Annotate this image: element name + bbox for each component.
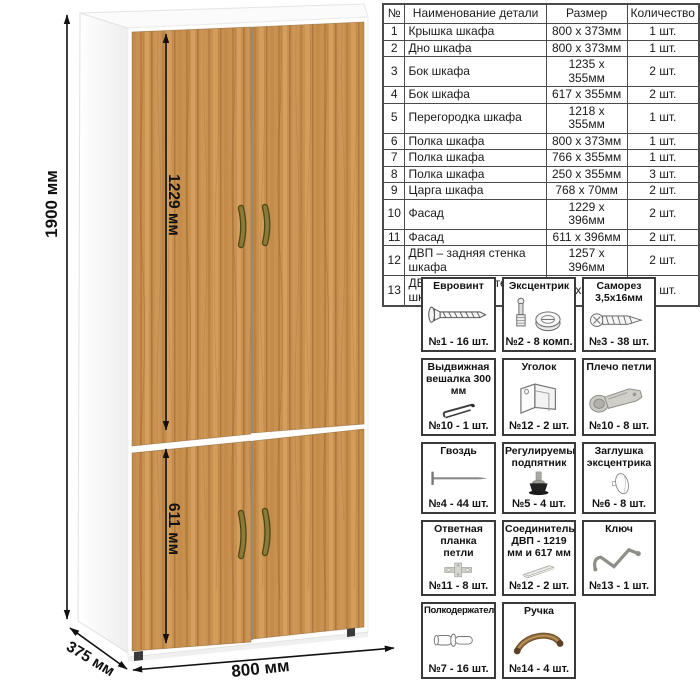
- hardware-title: Полкодержатель: [424, 606, 493, 617]
- table-row: 3Бок шкафа1235 х 355мм2 шт.: [383, 57, 699, 87]
- wardrobe-side-panel: [78, 13, 128, 653]
- part-size: 800 х 373мм: [546, 133, 627, 150]
- table-row: 6Полка шкафа800 х 373мм1 шт.: [383, 133, 699, 150]
- hex-key-icon: [585, 536, 653, 580]
- part-qty: 1 шт.: [627, 24, 699, 41]
- hardware-label: №12 - 2 шт.: [505, 420, 573, 433]
- hardware-title: Соединитель ДВП - 1219 мм и 617 мм: [505, 524, 573, 559]
- dim-width-label: 800 мм: [230, 656, 290, 681]
- part-qty: 2 шт.: [627, 246, 699, 276]
- part-qty: 1 шт.: [627, 150, 699, 167]
- row-num: 9: [383, 183, 405, 200]
- part-name: ДВП – задняя стенка шкафа: [405, 246, 546, 276]
- hardware-label: №3 - 38 шт.: [585, 336, 653, 349]
- part-name: Бок шкафа: [405, 87, 546, 104]
- hardware-label: №4 - 44 шт.: [424, 498, 493, 511]
- hardware-item-euro-screw: Евровинт№1 - 16 шт.: [421, 277, 496, 352]
- part-size: 611 х 396мм: [546, 229, 627, 246]
- row-num: 6: [383, 133, 405, 150]
- part-qty: 1 шт.: [627, 40, 699, 57]
- nail-icon: [424, 458, 493, 498]
- row-num: 7: [383, 150, 405, 167]
- col-header-name: Наименование детали: [405, 4, 546, 24]
- hardware-item-hinge-arm: Плечо петли№10 - 8 шт.: [582, 358, 656, 436]
- part-size: 768 х 70мм: [546, 183, 627, 200]
- hardware-title: Эксцентрик: [505, 281, 573, 293]
- row-num: 13: [383, 276, 405, 307]
- wardrobe-illustration: 1900 мм 1229 мм 611 мм 800 мм 375 мм: [0, 0, 410, 700]
- euro-screw-icon: [424, 293, 493, 336]
- part-qty: 2 шт.: [627, 87, 699, 104]
- hardware-item-adjustable-foot: Регулируемый подпятник№5 - 4 шт.: [502, 442, 576, 514]
- part-size: 1235 х 355мм: [546, 57, 627, 87]
- hardware-item-hinge-plate: Ответная планка петли№11 - 8 шт.: [421, 520, 496, 596]
- hardware-item-hex-key: Ключ№13 - 1 шт.: [582, 520, 656, 596]
- col-header-qty: Количество: [627, 4, 699, 24]
- part-qty: 2 шт.: [627, 199, 699, 229]
- table-row: 2Дно шкафа800 х 373мм1 шт.: [383, 40, 699, 57]
- row-num: 10: [383, 199, 405, 229]
- part-size: 800 х 373мм: [546, 40, 627, 57]
- row-num: 5: [383, 103, 405, 133]
- dim-height-label: 1900 мм: [42, 170, 61, 238]
- door-lower-left: [132, 441, 251, 651]
- hdf-connector-icon: [505, 559, 573, 580]
- part-size: 250 х 355мм: [546, 166, 627, 183]
- hardware-title: Ручка: [505, 606, 573, 618]
- part-name: Фасад: [405, 229, 546, 246]
- part-name: Дно шкафа: [405, 40, 546, 57]
- row-num: 4: [383, 87, 405, 104]
- part-size: 766 х 355мм: [546, 150, 627, 167]
- part-name: Царга шкафа: [405, 183, 546, 200]
- hardware-title: Плечо петли: [585, 362, 653, 374]
- hardware-title: Евровинт: [424, 281, 493, 293]
- hardware-item-screw: Саморез 3,5х16мм№3 - 38 шт.: [582, 277, 656, 352]
- table-row: 4Бок шкафа617 х 355мм2 шт.: [383, 87, 699, 104]
- wardrobe-foot-left: [134, 651, 143, 661]
- col-header-num: №: [383, 4, 405, 24]
- parts-table: № Наименование детали Размер Количество …: [382, 3, 700, 307]
- hardware-title: Заглушка эксцентрика: [585, 446, 653, 470]
- part-name: Бок шкафа: [405, 57, 546, 87]
- hardware-label: №13 - 1 шт.: [585, 580, 653, 593]
- row-num: 1: [383, 24, 405, 41]
- hardware-title: Уголок: [505, 362, 573, 374]
- hardware-item-nail: Гвоздь№4 - 44 шт.: [421, 442, 496, 514]
- part-qty: 2 шт.: [627, 183, 699, 200]
- hardware-label: №10 - 8 шт.: [585, 420, 653, 433]
- table-row: 11Фасад611 х 396мм2 шт.: [383, 229, 699, 246]
- hardware-title: Ключ: [585, 524, 653, 536]
- handle-lower-right: [265, 511, 268, 553]
- part-qty: 1 шт.: [627, 103, 699, 133]
- table-row: 8Полка шкафа250 х 355мм3 шт.: [383, 166, 699, 183]
- parts-table-body: 1Крышка шкафа800 х 373мм1 шт.2Дно шкафа8…: [383, 24, 699, 307]
- row-num: 11: [383, 229, 405, 246]
- adjustable-foot-icon: [505, 470, 573, 499]
- table-row: 1Крышка шкафа800 х 373мм1 шт.: [383, 24, 699, 41]
- hardware-item-hdf-connector: Соединитель ДВП - 1219 мм и 617 мм№12 - …: [502, 520, 576, 596]
- shelf-pin-icon: [424, 617, 493, 663]
- part-size: 1218 х 355мм: [546, 103, 627, 133]
- part-name: Перегородка шкафа: [405, 103, 546, 133]
- hardware-title: Выдвижная вешалка 300 мм: [424, 362, 493, 397]
- part-size: 800 х 373мм: [546, 24, 627, 41]
- parts-table-header-row: № Наименование детали Размер Количество: [383, 4, 699, 24]
- row-num: 12: [383, 246, 405, 276]
- part-name: Крышка шкафа: [405, 24, 546, 41]
- hardware-item-pullout-hanger: Выдвижная вешалка 300 мм№10 - 1 шт.: [421, 358, 496, 436]
- col-header-size: Размер: [546, 4, 627, 24]
- table-row: 9Царга шкафа768 х 70мм2 шт.: [383, 183, 699, 200]
- row-num: 3: [383, 57, 405, 87]
- part-qty: 2 шт.: [627, 57, 699, 87]
- hardware-label: №2 - 8 комп.: [505, 336, 573, 349]
- hardware-item-corner-bracket: Уголок№12 - 2 шт.: [502, 358, 576, 436]
- hardware-label: №1 - 16 шт.: [424, 336, 493, 349]
- part-qty: 2 шт.: [627, 229, 699, 246]
- part-name: Полка шкафа: [405, 133, 546, 150]
- part-name: Полка шкафа: [405, 150, 546, 167]
- hardware-grid: Евровинт№1 - 16 шт.Эксцентрик№2 - 8 комп…: [421, 277, 656, 679]
- hardware-title: Гвоздь: [424, 446, 493, 458]
- hinge-arm-icon: [585, 374, 653, 420]
- hardware-title: Саморез 3,5х16мм: [585, 281, 653, 305]
- handle-upper-right: [265, 207, 267, 243]
- hardware-item-shelf-pin: Полкодержатель№7 - 16 шт.: [421, 602, 496, 679]
- hardware-label: №7 - 16 шт.: [424, 663, 493, 676]
- hardware-label: №10 - 1 шт.: [424, 420, 493, 433]
- table-row: 12ДВП – задняя стенка шкафа1257 х 396мм2…: [383, 246, 699, 276]
- hardware-label: №14 - 4 шт.: [505, 663, 573, 676]
- handle-lower-left: [241, 513, 244, 556]
- hardware-item-handle: Ручка№14 - 4 шт.: [502, 602, 576, 679]
- handle-icon: [505, 618, 573, 663]
- hardware-label: №6 - 8 шт.: [585, 498, 653, 511]
- hardware-label: №12 - 2 шт.: [505, 580, 573, 593]
- corner-bracket-icon: [505, 374, 573, 420]
- wardrobe-foot-right: [347, 628, 355, 637]
- hardware-label: №5 - 4 шт.: [505, 498, 573, 511]
- hardware-label: №11 - 8 шт.: [424, 580, 493, 593]
- hardware-title: Регулируемый подпятник: [505, 446, 573, 470]
- hardware-item-cam-cover: Заглушка эксцентрика№6 - 8 шт.: [582, 442, 656, 514]
- part-size: 1257 х 396мм: [546, 246, 627, 276]
- dim-depth-label: 375 мм: [63, 638, 117, 680]
- cam-cover-icon: [585, 470, 653, 499]
- hardware-title: Ответная планка петли: [424, 524, 493, 559]
- hinge-plate-icon: [424, 559, 493, 580]
- row-num: 8: [383, 166, 405, 183]
- part-qty: 3 шт.: [627, 166, 699, 183]
- screw-icon: [585, 305, 653, 337]
- table-row: 10Фасад1229 х 396мм2 шт.: [383, 199, 699, 229]
- part-qty: 1 шт.: [627, 133, 699, 150]
- table-row: 7Полка шкафа766 х 355мм1 шт.: [383, 150, 699, 167]
- part-size: 617 х 355мм: [546, 87, 627, 104]
- part-name: Полка шкафа: [405, 166, 546, 183]
- dim-lower-door-label: 611 мм: [165, 503, 182, 555]
- door-upper-left: [132, 27, 251, 446]
- row-num: 2: [383, 40, 405, 57]
- part-size: 1229 х 396мм: [546, 199, 627, 229]
- dim-upper-door-label: 1229 мм: [165, 174, 182, 236]
- cam-lock-icon: [505, 293, 573, 336]
- handle-upper-left: [241, 208, 243, 245]
- pullout-hanger-icon: [424, 397, 493, 420]
- table-row: 5Перегородка шкафа1218 х 355мм1 шт.: [383, 103, 699, 133]
- hardware-item-cam-lock: Эксцентрик№2 - 8 комп.: [502, 277, 576, 352]
- part-name: Фасад: [405, 199, 546, 229]
